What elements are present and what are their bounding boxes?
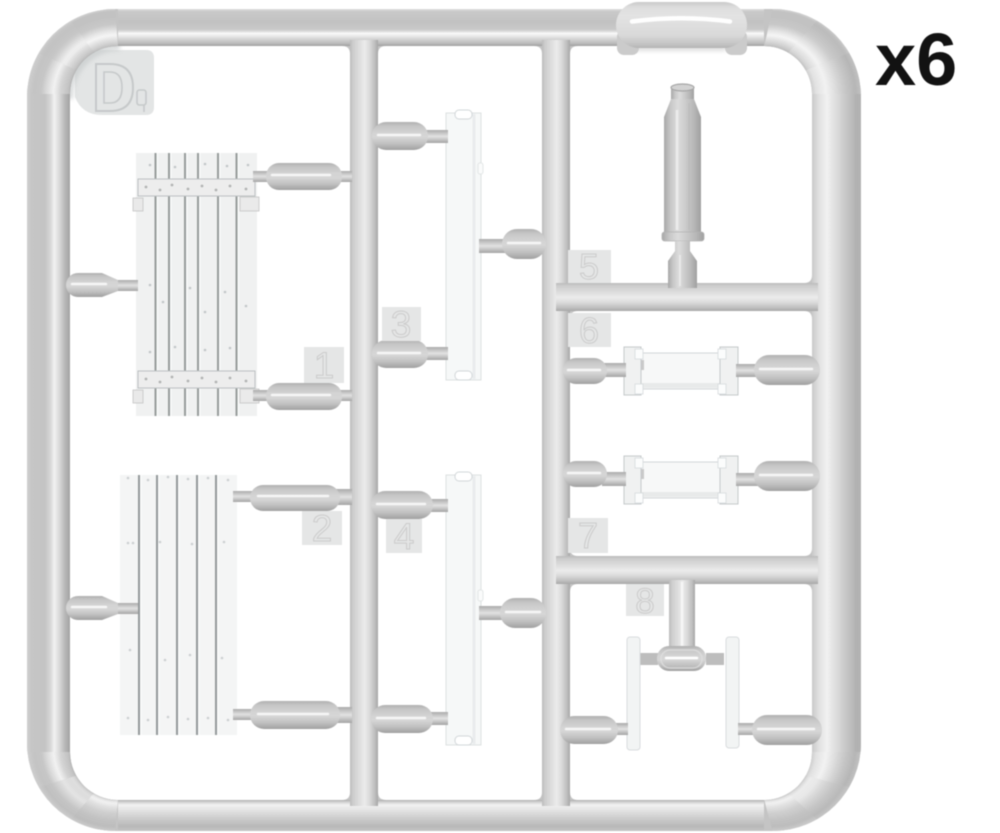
- svg-text:6: 6: [579, 310, 599, 351]
- svg-text:7: 7: [578, 515, 598, 556]
- svg-text:x6: x6: [875, 18, 957, 101]
- svg-text:5: 5: [579, 246, 599, 287]
- svg-text:3: 3: [391, 304, 412, 345]
- svg-text:4: 4: [394, 516, 415, 557]
- svg-text:1: 1: [314, 345, 335, 386]
- svg-text:8: 8: [635, 582, 654, 621]
- svg-text:2: 2: [312, 508, 333, 549]
